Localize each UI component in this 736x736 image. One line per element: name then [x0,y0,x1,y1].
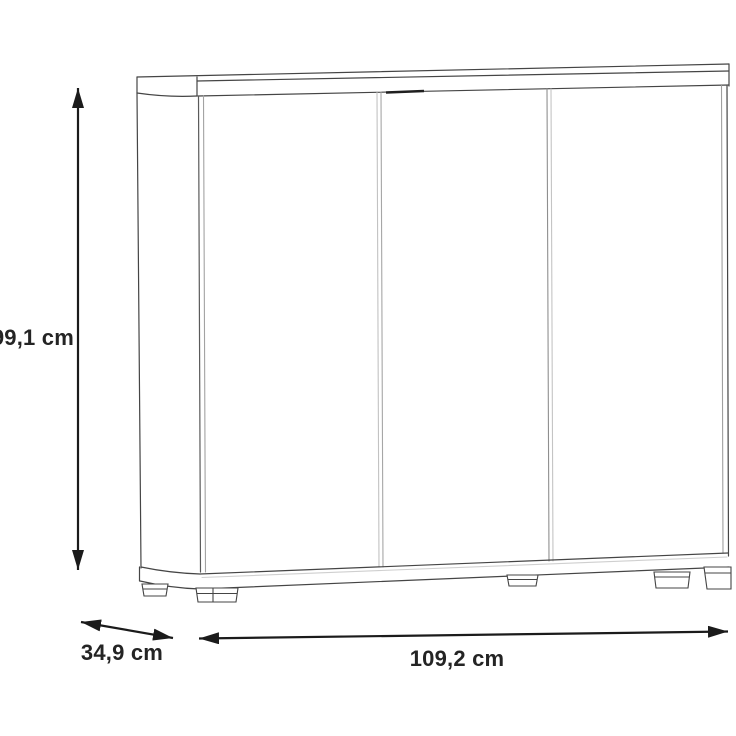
plinth-bottom-edge [140,567,729,589]
foot-front-right [704,567,731,589]
right-door-right-edge [722,86,724,554]
plinth-inner-line [202,557,727,578]
dimension-labels: 99,1 cm 34,9 cm 109,2 cm [0,325,504,671]
top-back-edge [137,64,729,77]
cabinet-plinth [140,553,730,589]
foot-left-side [142,584,168,596]
depth-dimension-label: 34,9 cm [81,640,163,665]
door-divider-2-right [551,89,553,561]
top-front-edge [197,71,729,81]
doors-top-edge [198,85,729,96]
door-divider-1-right [381,93,383,568]
door-divider-1-left [377,93,379,568]
top-side-bottom-edge [137,93,197,96]
width-dimension-label: 109,2 cm [410,646,505,671]
dimension-diagram-canvas: 99,1 cm 34,9 cm 109,2 cm [0,0,736,736]
width-dimension-arrow [199,632,728,639]
dimension-arrows [78,88,728,639]
cabinet-doors [377,86,729,568]
cabinet-left-side-panel [137,93,206,572]
height-dimension-label: 99,1 cm [0,325,74,350]
product-dimension-diagram: 99,1 cm 34,9 cm 109,2 cm [0,0,736,736]
depth-dimension-arrow [81,622,173,638]
cabinet-drawing [137,64,731,602]
depth-dimension [81,622,173,638]
door-divider-2-left [547,89,549,561]
left-door-left-edge [204,96,206,572]
cabinet-top-panel [137,64,729,96]
foot-right-middle [654,572,690,588]
cabinet-right-edge [727,86,729,556]
foot-middle [507,575,538,586]
side-left-edge [137,93,141,568]
front-left-corner-edge [199,96,201,572]
top-edge-dark-accent [386,91,424,93]
width-dimension [199,632,728,639]
foot-front-left [196,588,238,602]
